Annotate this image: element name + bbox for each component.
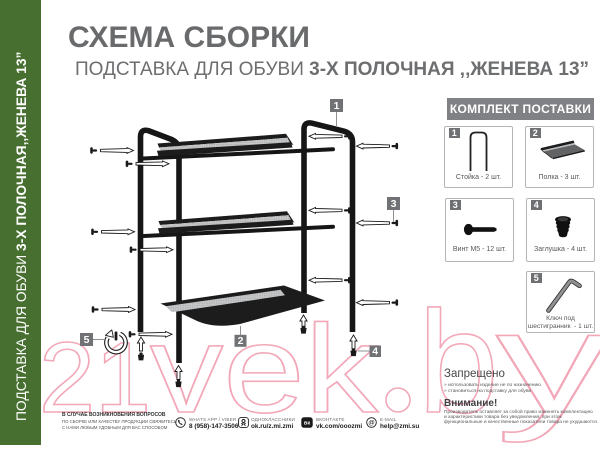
svg-text:3: 3 — [391, 198, 397, 210]
svg-text:1: 1 — [334, 100, 340, 112]
svg-text:вк: вк — [304, 420, 310, 426]
svg-text:5: 5 — [84, 334, 90, 346]
svg-text:2: 2 — [238, 335, 244, 347]
svg-text:4: 4 — [372, 346, 378, 358]
svg-text:@: @ — [368, 419, 375, 426]
